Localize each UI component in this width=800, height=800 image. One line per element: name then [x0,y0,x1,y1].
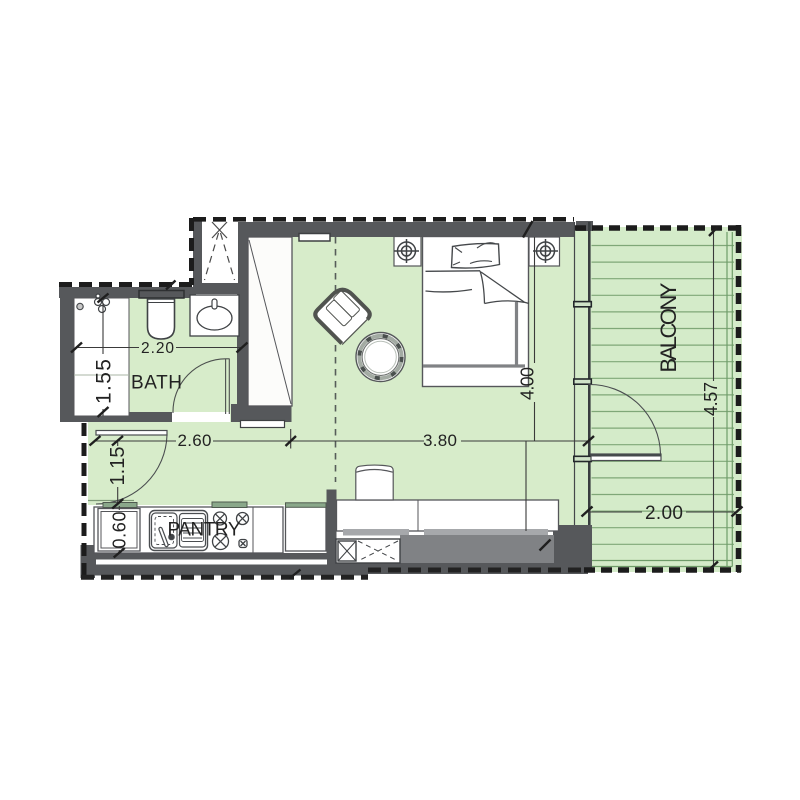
svg-text:2.20: 2.20 [141,340,174,357]
svg-text:4.57: 4.57 [701,382,721,416]
svg-text:BATH: BATH [131,373,182,394]
svg-text:PANTRY: PANTRY [168,520,241,541]
svg-text:1.15: 1.15 [107,447,129,486]
svg-text:2.00: 2.00 [645,503,683,524]
svg-text:2.60: 2.60 [178,431,212,450]
svg-text:1.55: 1.55 [93,359,116,404]
svg-text:BALCONY: BALCONY [656,282,681,372]
svg-text:0.60: 0.60 [110,512,130,549]
svg-text:4.00: 4.00 [518,367,538,400]
svg-text:3.80: 3.80 [423,431,457,450]
